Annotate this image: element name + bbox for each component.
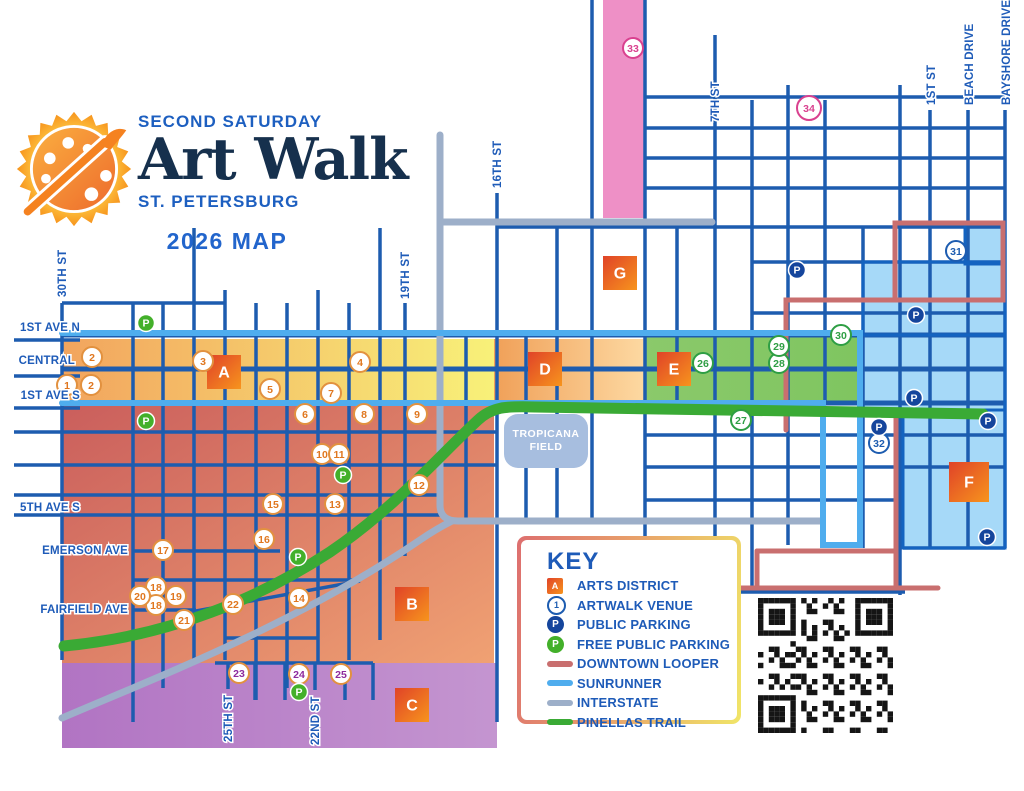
venue-number: 27 [735,415,747,427]
district-letter: E [669,362,680,379]
paint-dab [85,187,99,201]
logo-line-st-petersburg: ST. PETERSBURG [138,192,458,212]
venue-number: 13 [329,499,341,511]
route-line-icon [547,661,577,667]
public-parking-icon: P [547,616,577,633]
venue-number: 29 [773,341,785,353]
street-label-beach-drive: BEACH DRIVE [964,23,976,105]
route-line-icon [547,700,577,706]
paint-dab [44,153,56,165]
key-item: PFREE PUBLIC PARKING [547,635,737,655]
map-key-panel: KEY AARTS DISTRICT1ARTWALK VENUEPPUBLIC … [517,536,741,724]
route-line-icon [547,680,577,686]
artwalk-venue-icon: 1 [547,596,577,615]
venue-number: 11 [333,449,344,461]
tropicana-field-label: FIELD [530,441,563,453]
key-item: SUNRUNNER [547,674,737,694]
venue-number: 10 [316,449,328,461]
venue-number: 16 [258,534,270,546]
street-label-1st-st: 1ST ST [926,65,938,105]
zone-waterfront-blue [965,223,1005,264]
route-line-icon [547,719,577,725]
street-label-central: CENTRAL [19,355,75,367]
key-item-label: ARTWALK VENUE [577,598,693,613]
venue-number: 31 [950,246,962,258]
arts-district-icon: A [547,578,577,594]
parking-letter: P [983,532,990,544]
key-item-label: FREE PUBLIC PARKING [577,637,730,652]
venue-number: 15 [267,499,279,511]
parking-letter: P [984,416,991,428]
key-title: KEY [547,548,737,576]
venue-number: 34 [803,103,815,115]
venue-number: 3 [200,356,206,368]
venue-number: 24 [293,669,305,681]
key-item-label: INTERSTATE [577,695,659,710]
key-item-label: DOWNTOWN LOOPER [577,656,719,671]
venue-number: 23 [233,668,245,680]
venue-number: 8 [361,409,367,421]
venue-number: 18 [150,600,162,612]
street-label-emerson-ave: EMERSON AVE [42,545,128,557]
parking-letter: P [142,318,149,330]
street-label-1st-ave-s: 1ST AVE S [21,390,80,402]
key-item: PPUBLIC PARKING [547,615,737,635]
district-letter: D [539,362,551,379]
venue-number: 25 [335,669,347,681]
zone-pink-strip [603,0,644,218]
street-label-25th-st: 25TH ST [223,695,235,742]
venue-number: 21 [178,615,190,627]
street-label-7th-st: 7TH ST [710,81,722,122]
key-item-label: PUBLIC PARKING [577,617,691,632]
venue-number: 18 [150,582,162,594]
key-item-label: SUNRUNNER [577,676,662,691]
street-label-fairfield-ave: FAIRFIELD AVE [40,604,128,616]
zone-purple-zone [62,663,497,748]
parking-letter: P [142,416,149,428]
qr-code [758,598,893,733]
venue-number: 2 [89,352,95,364]
street-label-16th-st: 16TH ST [492,141,504,188]
key-item: AARTS DISTRICT [547,576,737,596]
venue-number: 9 [414,409,420,421]
paint-dab [62,137,74,149]
parking-letter: P [793,265,800,277]
venue-number: 14 [293,593,305,605]
venue-number: 2 [88,380,94,392]
tropicana-field-label: TROPICANA [513,428,580,440]
parking-letter: P [339,470,346,482]
logo-title-art-walk: Art Walk [138,130,458,190]
venue-number: 12 [413,480,425,492]
free-parking-icon: P [547,636,577,653]
street-label-5th-ave-s: 5TH AVE S [20,502,80,514]
key-item: INTERSTATE [547,693,737,713]
venue-number: 19 [170,591,182,603]
sun-palette-icon [14,108,134,230]
parking-letter: P [295,687,302,699]
key-item: DOWNTOWN LOOPER [547,654,737,674]
venue-number: 26 [697,358,709,370]
parking-letter: P [294,552,301,564]
parking-letter: P [875,422,882,434]
venue-number: 6 [302,409,308,421]
venue-number: 32 [873,438,885,450]
zone-waterfront-blue [860,335,1005,410]
district-letter: C [406,698,418,715]
map-year-title: 2026 MAP [142,228,312,255]
parking-letter: P [912,310,919,322]
venue-number: 22 [227,599,239,611]
venue-number: 4 [357,357,363,369]
parking-letter: P [910,393,917,405]
venue-number: 30 [835,330,847,342]
key-item-label: PINELLAS TRAIL [577,715,686,730]
key-item: PINELLAS TRAIL [547,713,737,733]
key-item: 1ARTWALK VENUE [547,596,737,616]
venue-number: 33 [627,43,639,55]
street-label-19th-st: 19TH ST [400,252,412,299]
street-label-bayshore-drive: BAYSHORE DRIVE [1001,0,1013,105]
venue-number: 17 [157,545,169,557]
venue-number: 20 [134,591,146,603]
street-label-22nd-st: 22ND ST [310,696,322,745]
district-letter: G [614,266,626,283]
key-item-label: ARTS DISTRICT [577,578,679,593]
district-letter: A [218,365,230,382]
district-letter: B [406,597,418,614]
paint-dab [41,174,51,184]
district-letter: F [964,475,974,492]
venue-number: 28 [773,358,785,370]
venue-number: 5 [267,384,273,396]
paint-dab [100,170,112,182]
street-label-30th-st: 30TH ST [57,250,69,297]
street-label-1st-ave-n: 1ST AVE N [20,322,80,334]
venue-number: 7 [328,388,334,400]
